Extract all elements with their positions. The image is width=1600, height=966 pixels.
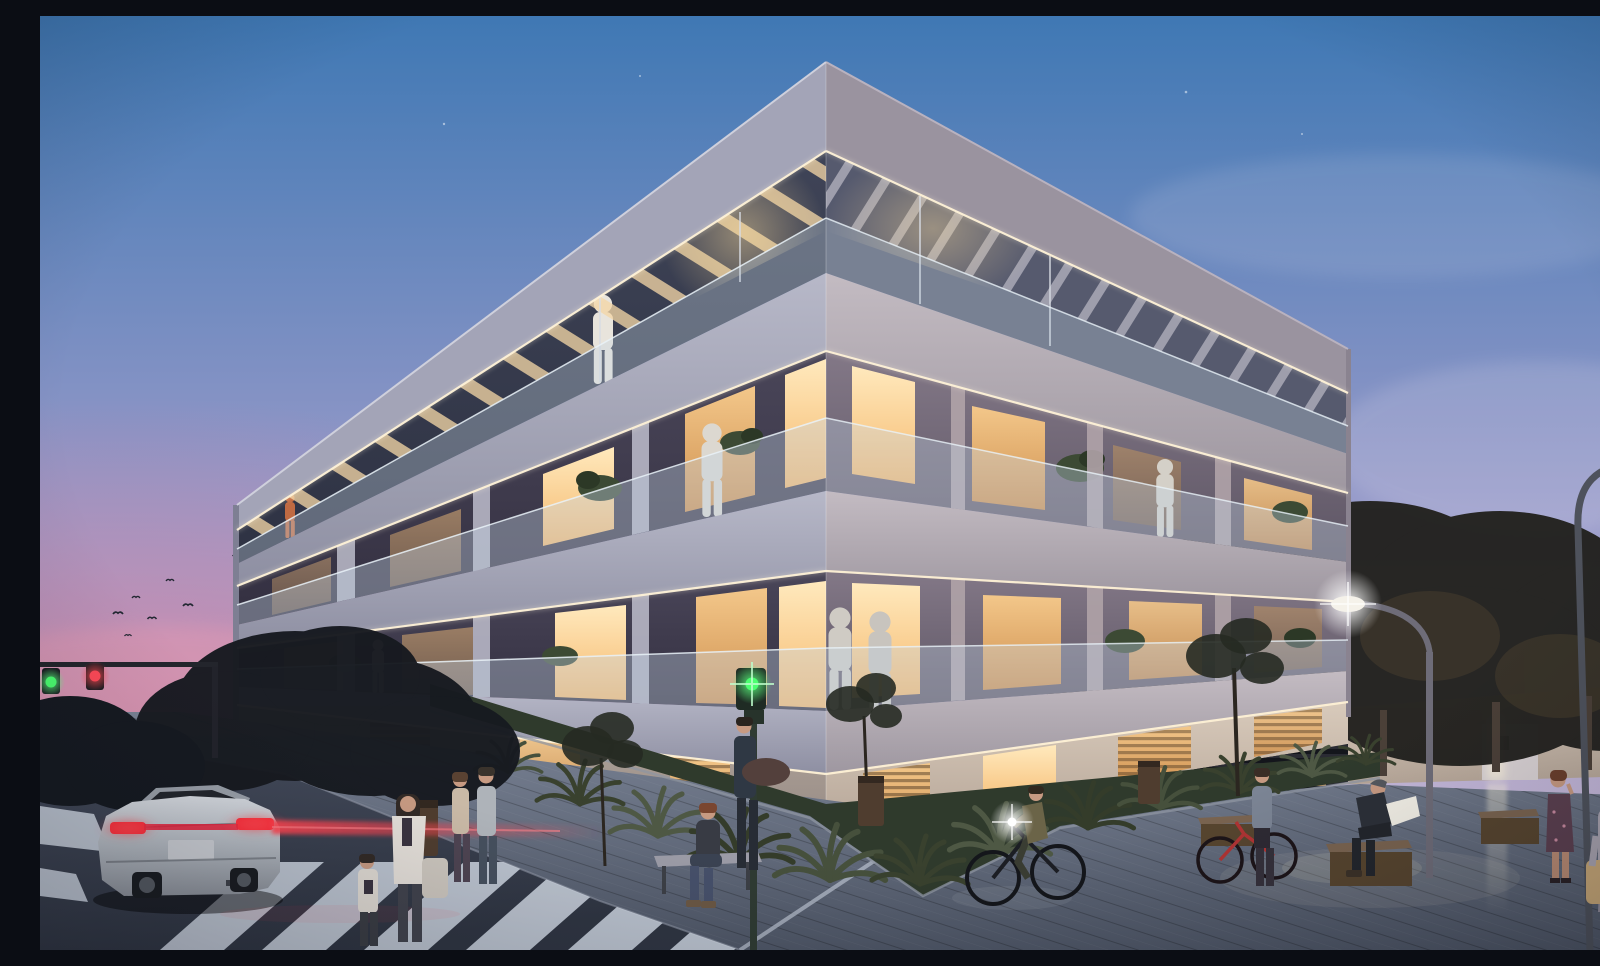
architectural-rendering: Photorealistic dusk rendering of a moder… (40, 16, 1600, 950)
vignette (40, 16, 1600, 950)
